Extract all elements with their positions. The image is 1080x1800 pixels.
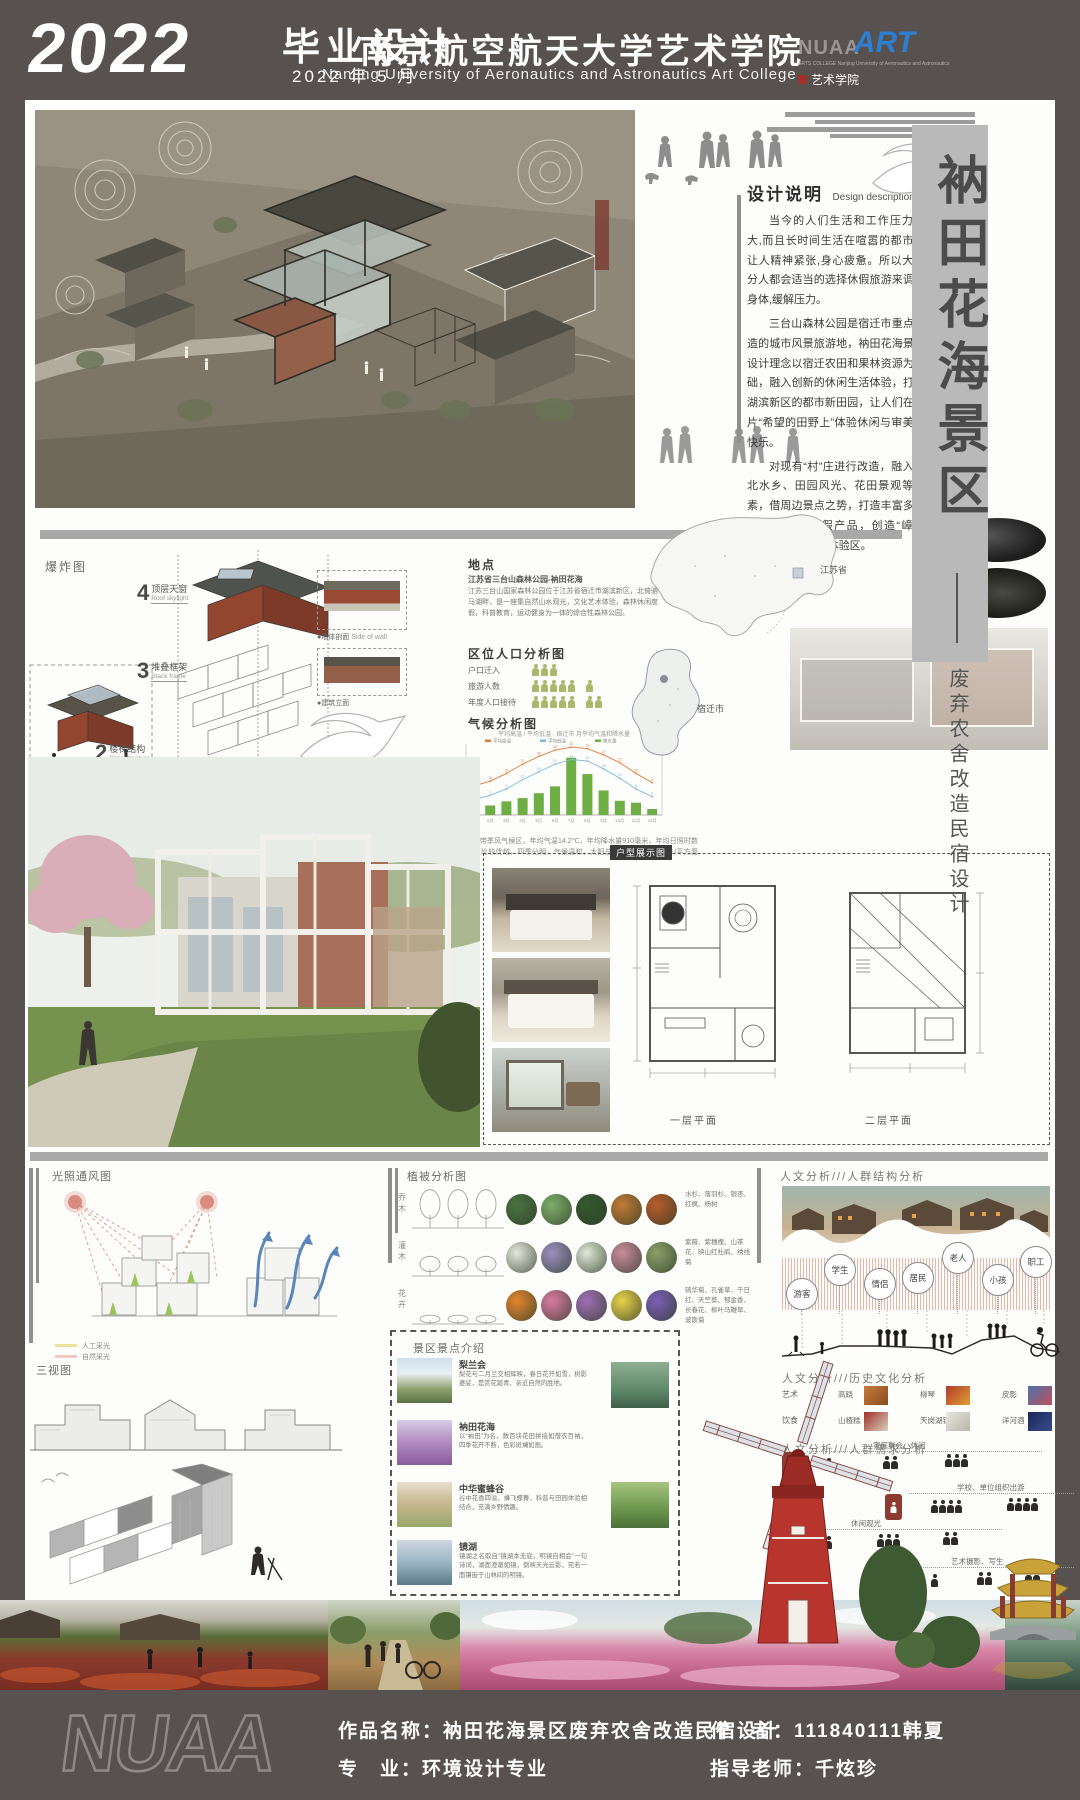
svg-text:15: 15 bbox=[504, 768, 508, 772]
svg-text:18: 18 bbox=[602, 764, 606, 768]
plant-photo-circle bbox=[506, 1242, 537, 1273]
svg-text:30: 30 bbox=[553, 745, 557, 749]
step-en: Roof skylight bbox=[151, 595, 188, 602]
location-body: 江苏三台山国家森林公园位于江苏省宿迁市湖滨新区，北倚骆马湖畔，是一座集自然山水观… bbox=[468, 586, 658, 620]
silhouette-group bbox=[945, 1454, 968, 1467]
silhouette-group bbox=[943, 1532, 958, 1545]
person-icon bbox=[586, 680, 593, 693]
silhouette-person bbox=[943, 1532, 950, 1545]
windmill-cutout bbox=[648, 1338, 940, 1650]
history-item-photo bbox=[1028, 1412, 1052, 1431]
exploded-step-4: 4 顶层天窗Roof skylight bbox=[137, 582, 188, 604]
person-icon bbox=[550, 664, 557, 677]
spot-desc: 以“衲田”为名，数百块花田拼接如僧衣百衲，四季花开不断，色彩斑斓如画。 bbox=[459, 1432, 587, 1451]
svg-text:平均高温 / 平均低温 · 宿迁市 月平均气温和降水量: 平均高温 / 平均低温 · 宿迁市 月平均气温和降水量 bbox=[498, 730, 630, 738]
crowd-guide-line bbox=[957, 1272, 958, 1314]
svg-text:11: 11 bbox=[521, 775, 525, 779]
plant-name-list: 硫华菊、孔雀草、千日红、天竺葵、郁金香、长春花、柳叶马鞭草、波斯菊 bbox=[685, 1286, 750, 1326]
side-banner: 衲田花海景区 bbox=[912, 125, 988, 662]
plant-name-list: 紫薇、紫穗槐、山茶花、映山红杜鹃、绣线菊 bbox=[685, 1238, 750, 1268]
silhouette-person bbox=[1031, 1498, 1038, 1511]
svg-text:6月: 6月 bbox=[552, 818, 559, 824]
history-item-photo bbox=[1028, 1386, 1052, 1405]
logo-college-row: 艺术学院 bbox=[798, 71, 978, 88]
callout-building-label: ●建筑立面 bbox=[317, 698, 349, 708]
population-row-label: 旅游人数 bbox=[468, 681, 532, 692]
svg-text:5: 5 bbox=[505, 784, 507, 788]
location-line1: 江苏省三台山森林公园-衲田花海 bbox=[468, 574, 583, 585]
person-icon bbox=[550, 696, 557, 709]
plant-photo-circle bbox=[611, 1290, 642, 1321]
sunwind-title: 光照通风图 bbox=[52, 1168, 112, 1184]
plan2-label: 二层平面 bbox=[865, 1112, 913, 1127]
plant-photo-circle bbox=[576, 1242, 607, 1273]
svg-text:5: 5 bbox=[635, 784, 637, 788]
svg-text:26: 26 bbox=[537, 751, 541, 755]
svg-text:平均高温: 平均高温 bbox=[493, 738, 511, 745]
svg-text:31: 31 bbox=[585, 744, 589, 748]
unit-plan-box-label: 户型展示图 bbox=[610, 845, 672, 860]
vegetation-category: 花卉 bbox=[398, 1288, 410, 1310]
person-icon bbox=[532, 664, 539, 677]
history-item-label: 皮影 bbox=[1002, 1389, 1017, 1400]
banner-subtitle: 废弃农舍改造民宿设计 bbox=[943, 668, 972, 918]
svg-text:23: 23 bbox=[585, 756, 589, 760]
plant-photo-circle bbox=[611, 1242, 642, 1273]
accent-bar bbox=[757, 1168, 761, 1263]
svg-text:1: 1 bbox=[489, 790, 491, 794]
silhouette-person bbox=[1015, 1498, 1022, 1511]
crowd-circle: 情侣 bbox=[864, 1268, 896, 1300]
spot-desc: 梨花与二月兰交相辉映，春日花开如雪，树影婆娑，是赏花踏青、亲近自然的胜地。 bbox=[459, 1370, 587, 1389]
legend-swatch bbox=[55, 1344, 77, 1347]
silhouette-person bbox=[1023, 1498, 1030, 1511]
sunlight-legend: 人工采光 自然采光 bbox=[55, 1340, 110, 1362]
city-label: 宿迁市 bbox=[697, 702, 724, 715]
svg-text:24: 24 bbox=[569, 755, 573, 759]
plant-sketch bbox=[412, 1188, 504, 1234]
three-views-title: 三视图 bbox=[36, 1362, 72, 1378]
svg-text:5月: 5月 bbox=[536, 818, 543, 824]
banner-title: 衲田花海景区 bbox=[921, 153, 996, 525]
person-icons bbox=[532, 664, 557, 677]
vegetation-title: 植被分析图 bbox=[407, 1168, 467, 1184]
wall-section-callout bbox=[317, 570, 407, 630]
interior-photo-lounge bbox=[492, 1048, 610, 1132]
svg-text:9月: 9月 bbox=[600, 818, 607, 824]
nuaa-outline-logo: NUAA bbox=[56, 1698, 280, 1789]
svg-text:12月: 12月 bbox=[648, 818, 657, 824]
history-item-label: 洋河酒 bbox=[1002, 1415, 1025, 1426]
svg-text:11月: 11月 bbox=[632, 818, 641, 824]
silhouette-person bbox=[1007, 1498, 1014, 1511]
spot-photo bbox=[397, 1358, 452, 1403]
step-cn: 顶层天窗 bbox=[151, 582, 188, 595]
sunlight-ventilation-diagram bbox=[47, 1188, 347, 1336]
svg-text:21: 21 bbox=[521, 759, 525, 763]
plant-photo-circle bbox=[541, 1242, 572, 1273]
step-number: 3 bbox=[137, 660, 149, 682]
person-icon bbox=[541, 664, 548, 677]
spot-photo bbox=[397, 1420, 452, 1465]
spot-desc: 谷中花香四溢，蜂飞蝶舞，科普与田园体验相结合，充满乡野情趣。 bbox=[459, 1494, 587, 1513]
plant-photo-circle bbox=[646, 1290, 677, 1321]
plant-photo-circle bbox=[506, 1194, 537, 1225]
photo-building-frame bbox=[800, 658, 914, 722]
crowd-circle: 职工 bbox=[1020, 1246, 1052, 1278]
massing-axonometric bbox=[30, 1462, 342, 1590]
logo-art-text: ART bbox=[854, 26, 915, 60]
interior-photo-bedroom-2 bbox=[492, 958, 610, 1042]
logo-nuaa-text: NUAA bbox=[798, 37, 860, 60]
interior-photo-bedroom-1 bbox=[492, 868, 610, 952]
banner-deco-bar bbox=[815, 120, 975, 124]
nuaa-art-logo: NUAA ART ARTS COLLEGE Nanjing University… bbox=[798, 26, 978, 88]
footer-author: 作 者：111840111韩夏 bbox=[710, 1716, 945, 1743]
facade-callout bbox=[317, 648, 407, 696]
step-cn: 楼梯结构 bbox=[109, 742, 149, 755]
plant-photo-circle bbox=[576, 1194, 607, 1225]
banner-deco-bar bbox=[785, 112, 975, 117]
strip-photo-path-riders bbox=[328, 1600, 460, 1690]
person-icon bbox=[550, 680, 557, 693]
legend-label: 自然采光 bbox=[82, 1352, 110, 1362]
crowd-circle: 居民 bbox=[902, 1262, 934, 1294]
spots-title: 景区景点介绍 bbox=[413, 1340, 485, 1356]
person-icon bbox=[541, 696, 548, 709]
elevation-drawings bbox=[30, 1380, 342, 1458]
svg-text:27: 27 bbox=[602, 750, 606, 754]
design-description: 设计说明 Design description 当今的人们生活和工作压力很大,而… bbox=[747, 180, 925, 561]
silhouette-person bbox=[955, 1500, 962, 1513]
header-year: 2022 bbox=[24, 8, 196, 88]
person-icon bbox=[559, 680, 566, 693]
person-icons bbox=[532, 680, 593, 693]
plant-photo-circle bbox=[646, 1194, 677, 1225]
province-label: 江苏省 bbox=[820, 563, 847, 576]
plant-photo-circle bbox=[611, 1194, 642, 1225]
spot-photo bbox=[397, 1482, 452, 1527]
floor-plan-1 bbox=[625, 868, 800, 1108]
population-title: 区位人口分析图 bbox=[468, 645, 566, 662]
plant-photo-circle bbox=[541, 1194, 572, 1225]
location-title: 地点 bbox=[468, 556, 496, 573]
exploded-step-3: 3 堆叠框架Stack frame bbox=[137, 660, 187, 682]
step-cn: 堆叠框架 bbox=[151, 660, 187, 673]
footer-advisor: 指导老师：千炫珍 bbox=[710, 1754, 878, 1781]
history-item-photo bbox=[946, 1412, 970, 1431]
accent-bar bbox=[388, 1168, 392, 1263]
person-icon bbox=[541, 680, 548, 693]
poster-root: 2022 毕业设计 2022 年 5 月 南京航空航天大学艺术学院 Nanjin… bbox=[0, 0, 1080, 1800]
person-icon bbox=[532, 696, 539, 709]
vegetation-category: 灌木 bbox=[398, 1240, 410, 1262]
step-en: Stack frame bbox=[151, 673, 187, 680]
svg-text:0: 0 bbox=[651, 792, 653, 796]
vegetation-row: 乔木水杉、落羽杉、银杏、红枫、杨树 bbox=[398, 1188, 750, 1234]
svg-text:2月: 2月 bbox=[487, 818, 494, 824]
plant-photo-circle bbox=[506, 1290, 537, 1321]
seal-icon bbox=[798, 75, 807, 84]
vegetation-category: 乔木 bbox=[398, 1192, 410, 1214]
crowd-circle: 小孩 bbox=[982, 1264, 1014, 1296]
crowd-guide-line bbox=[1035, 1276, 1036, 1314]
svg-text:10月: 10月 bbox=[615, 818, 624, 824]
footer-major: 专 业：环境设计专业 bbox=[338, 1754, 548, 1781]
plant-photo-circle bbox=[576, 1290, 607, 1321]
silhouette-person bbox=[953, 1454, 960, 1467]
svg-text:7月: 7月 bbox=[568, 818, 575, 824]
accent-bar bbox=[29, 1168, 33, 1343]
plant-name-list: 水杉、落羽杉、银杏、红枫、杨树 bbox=[685, 1190, 750, 1210]
banner-dash bbox=[956, 573, 958, 643]
desc-title-cn: 设计说明 bbox=[747, 185, 823, 204]
callout-wall-label: ●墙体剖面 Side of wall bbox=[317, 632, 387, 642]
headboard bbox=[504, 980, 598, 994]
spot-photo bbox=[397, 1540, 452, 1585]
person-icon bbox=[532, 680, 539, 693]
crowd-title: 人文分析///人群结构分析 bbox=[780, 1168, 925, 1184]
svg-text:21: 21 bbox=[553, 759, 557, 763]
spot-desc: 镜湖之名取自“镜湖本无底，明镜自相会”一句诗词，湖面澄澈如镜，倒映天光云影，宛若… bbox=[459, 1552, 587, 1580]
svg-text:32: 32 bbox=[569, 742, 573, 746]
sofa bbox=[566, 1082, 600, 1106]
plant-sketch bbox=[412, 1284, 504, 1330]
plant-photo-circle bbox=[541, 1290, 572, 1321]
svg-text:3月: 3月 bbox=[503, 818, 510, 824]
person-icon bbox=[568, 680, 575, 693]
plant-sketch bbox=[412, 1236, 504, 1282]
strip-photo-flower-village bbox=[0, 1600, 328, 1690]
section-divider bbox=[30, 1152, 1048, 1161]
crowd-circles: 游客学生情侣居民老人小孩职工 bbox=[782, 1236, 1050, 1314]
desc-accent-bar bbox=[737, 195, 741, 443]
person-icon bbox=[595, 696, 602, 709]
silhouette-person bbox=[945, 1454, 952, 1467]
population-row-label: 年度人口接待 bbox=[468, 697, 532, 708]
person-icons bbox=[532, 696, 602, 709]
accent-bar bbox=[36, 1168, 39, 1283]
vegetation-row: 花卉硫华菊、孔雀草、千日红、天竺葵、郁金香、长春花、柳叶马鞭草、波斯菊 bbox=[398, 1284, 750, 1330]
logo-subtext: ARTS COLLEGE Nanjing University of Aeron… bbox=[798, 61, 978, 69]
pavilion-cutout bbox=[986, 1536, 1080, 1690]
site-axonometric-render bbox=[35, 110, 635, 508]
window bbox=[506, 1060, 564, 1110]
legend-label: 人工采光 bbox=[82, 1341, 110, 1351]
plan1-label: 一层平面 bbox=[670, 1112, 718, 1127]
svg-text:降水量: 降水量 bbox=[603, 738, 617, 745]
person-icon bbox=[568, 696, 575, 709]
svg-text:10: 10 bbox=[488, 776, 492, 780]
silhouette-person bbox=[977, 1572, 984, 1585]
svg-text:平均低温: 平均低温 bbox=[548, 738, 566, 745]
bed bbox=[508, 994, 594, 1028]
vegetation-row: 灌木紫薇、紫穗槐、山茶花、映山红杜鹃、绣线菊 bbox=[398, 1236, 750, 1282]
svg-text:9: 9 bbox=[651, 778, 653, 782]
svg-text:15: 15 bbox=[634, 768, 638, 772]
person-icon bbox=[559, 696, 566, 709]
silhouette-person bbox=[939, 1500, 946, 1513]
svg-text:16: 16 bbox=[537, 767, 541, 771]
bed bbox=[510, 910, 592, 940]
crowd-circle: 游客 bbox=[786, 1278, 818, 1310]
plant-photo-circle bbox=[646, 1242, 677, 1273]
wall-elevation-strip bbox=[324, 581, 400, 611]
step-number: 4 bbox=[137, 582, 149, 604]
need-label: 学校、单位组织出游 bbox=[957, 1482, 1025, 1493]
svg-text:8月: 8月 bbox=[584, 818, 591, 824]
silhouette-person bbox=[947, 1500, 954, 1513]
facade-strip bbox=[324, 657, 400, 683]
headboard bbox=[506, 894, 596, 910]
legend-swatch bbox=[55, 1355, 77, 1358]
silhouette-person bbox=[951, 1532, 958, 1545]
silhouette-person bbox=[961, 1454, 968, 1467]
desc-paragraph-2: 三台山森林公园是宿迁市重点打造的城市风景旅游地，衲田花海景区设计理念以宿迁农田和… bbox=[747, 315, 925, 454]
crowd-circle: 老人 bbox=[942, 1242, 974, 1274]
logo-college-cn: 艺术学院 bbox=[811, 71, 859, 88]
svg-text:12: 12 bbox=[618, 773, 622, 777]
header-school-en: Nanjing University of Aeronautics and As… bbox=[322, 66, 797, 83]
svg-text:4月: 4月 bbox=[519, 818, 526, 824]
exterior-render bbox=[28, 757, 480, 1147]
history-item-photo bbox=[946, 1386, 970, 1405]
silhouette-group bbox=[1007, 1498, 1038, 1511]
people-silhouettes-top bbox=[637, 128, 802, 188]
desc-paragraph-1: 当今的人们生活和工作压力很大,而且长时间生活在喧嚣的都市中让人精神紧张,身心疲惫… bbox=[747, 212, 925, 311]
person-icon bbox=[586, 696, 593, 709]
crowd-circle: 学生 bbox=[824, 1254, 856, 1286]
population-row-label: 户口迁入 bbox=[468, 665, 532, 676]
